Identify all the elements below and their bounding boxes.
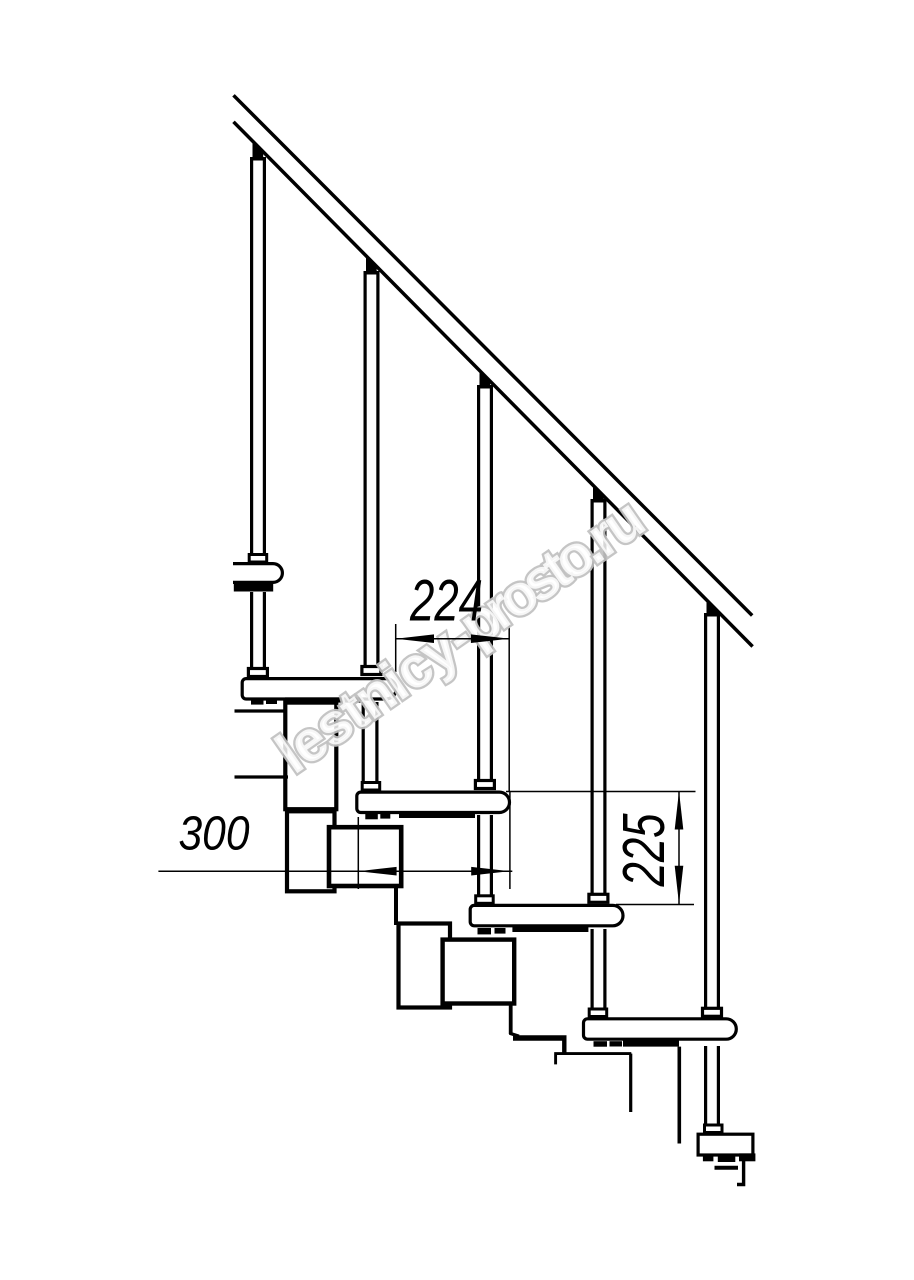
- svg-text:224: 224: [409, 569, 483, 634]
- svg-text:225: 225: [611, 813, 677, 887]
- svg-text:300: 300: [179, 808, 250, 861]
